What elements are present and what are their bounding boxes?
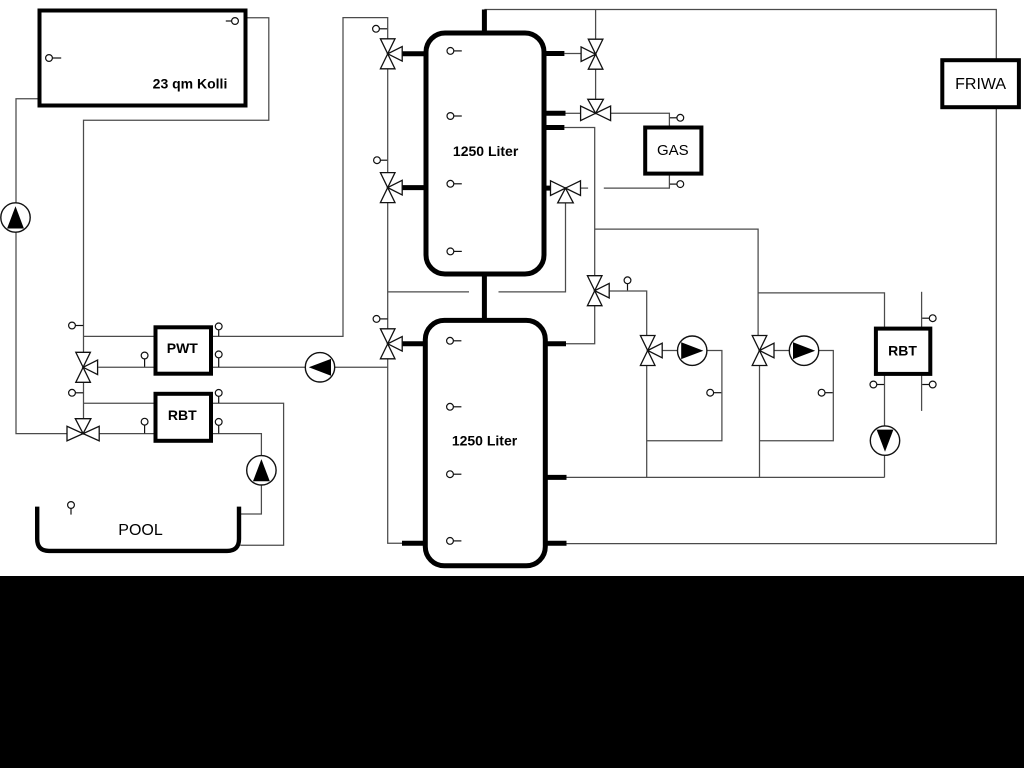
svg-text:1250 Liter: 1250 Liter — [452, 433, 518, 449]
svg-text:RBT: RBT — [888, 342, 917, 358]
svg-text:FRIWA: FRIWA — [955, 76, 1006, 93]
svg-text:RBT: RBT — [168, 407, 197, 423]
svg-text:POOL: POOL — [118, 522, 163, 539]
svg-text:1250 Liter: 1250 Liter — [453, 143, 519, 159]
svg-text:23 qm Kolli: 23 qm Kolli — [153, 76, 228, 92]
svg-text:GAS: GAS — [657, 142, 689, 159]
svg-text:PWT: PWT — [167, 340, 199, 356]
